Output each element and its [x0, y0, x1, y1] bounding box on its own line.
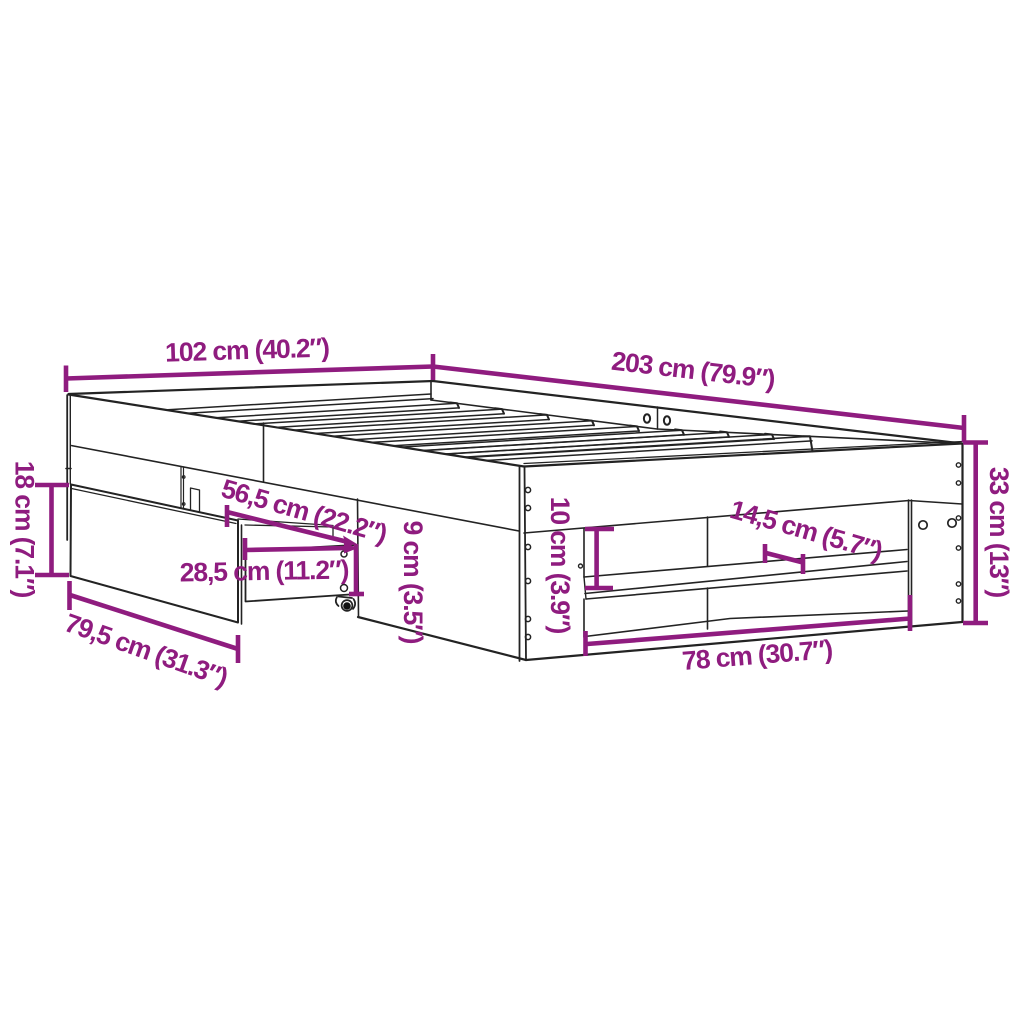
svg-text:9 cm (3.5″): 9 cm (3.5″) — [398, 521, 428, 644]
svg-text:10 cm (3.9″): 10 cm (3.9″) — [545, 497, 575, 634]
svg-text:102 cm (40.2″): 102 cm (40.2″) — [165, 332, 330, 367]
svg-text:33 cm (13″): 33 cm (13″) — [984, 467, 1014, 597]
svg-text:28,5 cm (11.2″): 28,5 cm (11.2″) — [179, 555, 348, 588]
svg-text:18 cm (7.1″): 18 cm (7.1″) — [10, 461, 40, 598]
